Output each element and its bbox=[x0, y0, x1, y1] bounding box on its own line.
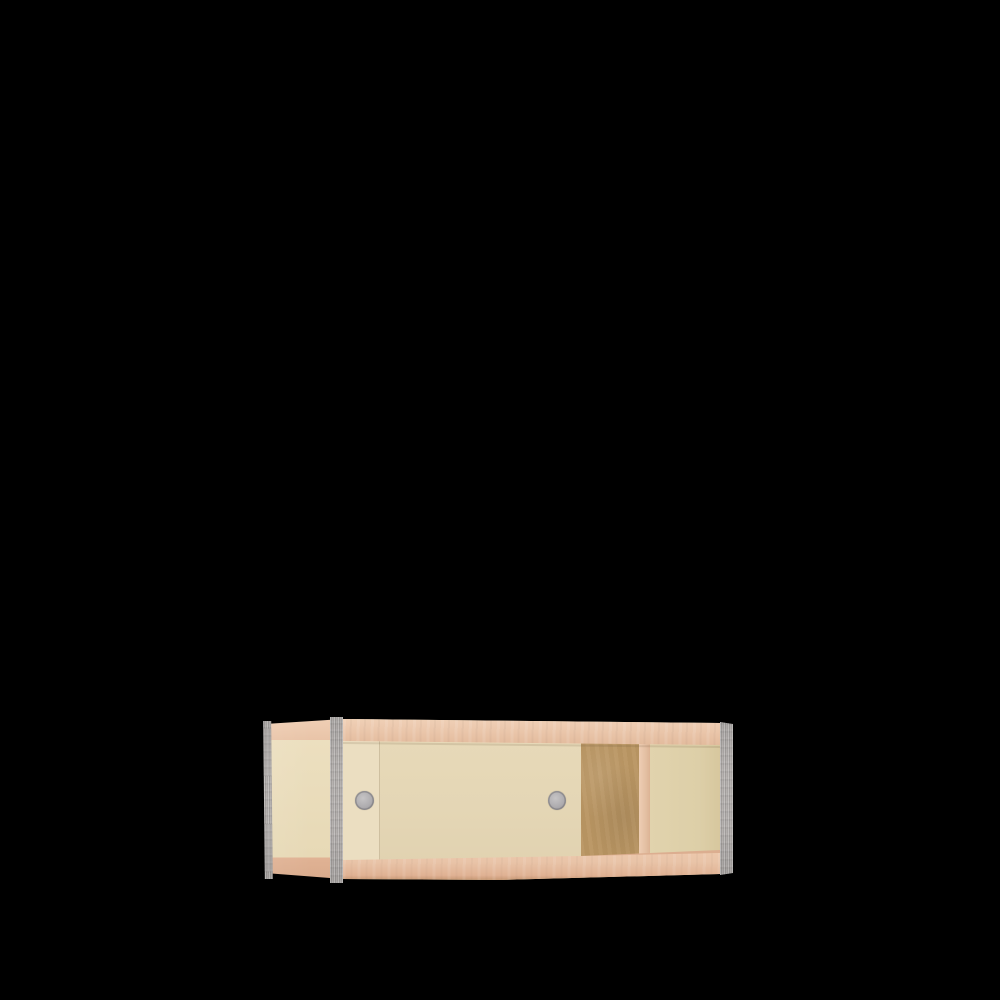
recessed-rear-panel bbox=[650, 744, 720, 854]
edge-trim-front-right bbox=[720, 722, 733, 875]
finger-pull-right bbox=[548, 791, 566, 810]
back-panel bbox=[581, 742, 639, 856]
finger-pull-left bbox=[355, 791, 374, 810]
cabinet-render bbox=[0, 0, 1000, 1000]
divider-edge bbox=[639, 743, 650, 856]
render-viewport[interactable] bbox=[0, 0, 1000, 1000]
edge-trim-front-left bbox=[330, 717, 343, 883]
edge-trim-rear-left bbox=[263, 721, 273, 879]
cabinet-front-face bbox=[343, 719, 720, 881]
